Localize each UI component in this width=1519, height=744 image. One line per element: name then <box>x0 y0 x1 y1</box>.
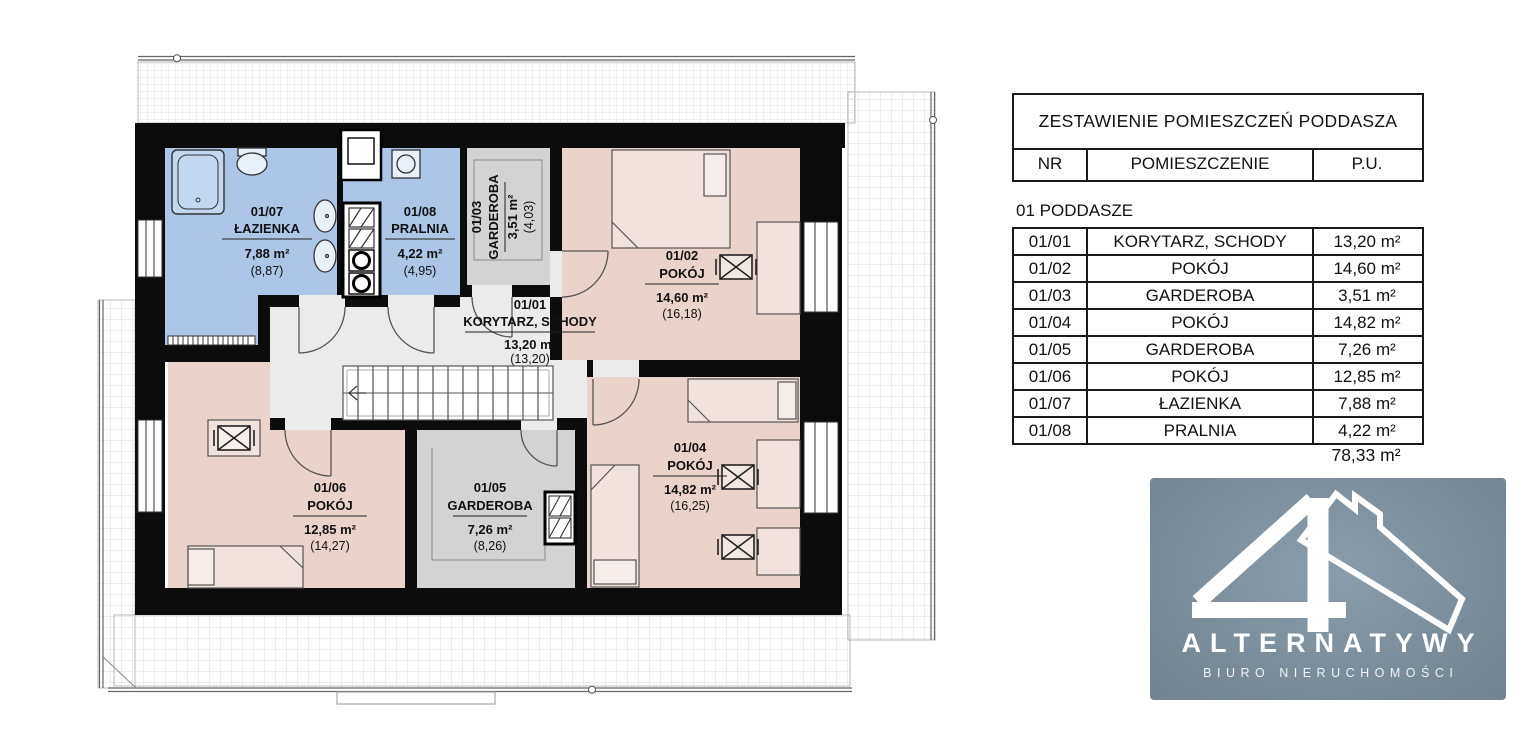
cell-area: 4,22 m² <box>1314 418 1420 443</box>
column-header-pomieszczenie: POMIESZCZENIE <box>1088 148 1314 180</box>
window-pokoj-04 <box>804 422 838 513</box>
svg-text:01/08: 01/08 <box>404 204 437 219</box>
svg-text:GARDEROBA: GARDEROBA <box>486 174 501 260</box>
cell-nr: 01/08 <box>1014 418 1088 443</box>
svg-text:(16,18): (16,18) <box>662 307 702 321</box>
window-lazienka <box>138 220 162 277</box>
column-header-nr: NR <box>1014 148 1088 180</box>
cell-area: 7,88 m² <box>1314 391 1420 416</box>
installation-shaft <box>343 203 380 297</box>
schedule-header-row: NR POMIESZCZENIE P.U. <box>1012 148 1424 182</box>
cell-nr: 01/02 <box>1014 256 1088 281</box>
cell-room: POKÓJ <box>1088 364 1314 389</box>
desk-icon <box>757 222 800 314</box>
cell-area: 12,85 m² <box>1314 364 1420 389</box>
desk-icon <box>757 440 800 575</box>
cell-nr: 01/07 <box>1014 391 1088 416</box>
svg-text:01/02: 01/02 <box>666 248 699 263</box>
svg-text:01/05: 01/05 <box>474 480 507 495</box>
svg-text:POKÓJ: POKÓJ <box>307 498 353 513</box>
table-row: 01/02 POKÓJ 14,60 m² <box>1014 256 1422 283</box>
svg-text:4,22 m²: 4,22 m² <box>398 246 443 261</box>
garderoba-05-shaft <box>545 492 575 544</box>
cell-nr: 01/05 <box>1014 337 1088 362</box>
table-row: 01/03 GARDEROBA 3,51 m² <box>1014 283 1422 310</box>
agency-logo: ALTERNATYWY BIURO NIERUCHOMOŚCI <box>1150 478 1506 700</box>
table-row: 01/06 POKÓJ 12,85 m² <box>1014 364 1422 391</box>
svg-text:14,82 m²: 14,82 m² <box>664 482 717 497</box>
svg-text:(8,87): (8,87) <box>251 264 284 278</box>
svg-text:01/01: 01/01 <box>514 297 547 312</box>
window-pokoj-02 <box>804 222 838 312</box>
room-schedule: ZESTAWIENIE POMIESZCZEŃ PODDASZA NR POMI… <box>1012 93 1424 475</box>
svg-text:7,26 m²: 7,26 m² <box>468 522 513 537</box>
svg-text:GARDEROBA: GARDEROBA <box>447 498 533 513</box>
svg-text:01/04: 01/04 <box>674 440 707 455</box>
cell-area: 3,51 m² <box>1314 283 1420 308</box>
floor-plan-drawing: 01/07 ŁAZIENKA 7,88 m² (8,87) 01/08 PRAL… <box>0 0 960 744</box>
svg-text:(13,20): (13,20) <box>510 352 550 366</box>
cell-nr: 01/01 <box>1014 229 1088 254</box>
svg-text:(16,25): (16,25) <box>670 499 710 513</box>
svg-text:12,85 m²: 12,85 m² <box>304 522 357 537</box>
laundry-washer-icon <box>392 150 420 178</box>
svg-text:7,88 m²: 7,88 m² <box>245 246 290 261</box>
desk-chair-icon <box>716 255 756 279</box>
table-row: 01/04 POKÓJ 14,82 m² <box>1014 310 1422 337</box>
cell-nr: 01/03 <box>1014 283 1088 308</box>
bed-icon <box>591 465 639 587</box>
chimney-block <box>341 130 381 180</box>
cell-area: 13,20 m² <box>1314 229 1420 254</box>
cell-room: GARDEROBA <box>1088 337 1314 362</box>
svg-text:KORYTARZ, SCHODY: KORYTARZ, SCHODY <box>463 314 597 329</box>
floor-plan-page: 01/07 ŁAZIENKA 7,88 m² (8,87) 01/08 PRAL… <box>0 0 1519 744</box>
svg-text:01/07: 01/07 <box>251 204 284 219</box>
table-row: 01/01 KORYTARZ, SCHODY 13,20 m² <box>1014 229 1422 256</box>
bed-icon <box>688 379 798 422</box>
cell-room: POKÓJ <box>1088 256 1314 281</box>
svg-text:PRALNIA: PRALNIA <box>391 221 449 236</box>
schedule-title: ZESTAWIENIE POMIESZCZEŃ PODDASZA <box>1012 93 1424 150</box>
svg-text:(4,95): (4,95) <box>404 264 437 278</box>
svg-text:01/06: 01/06 <box>314 480 347 495</box>
svg-text:3,51 m²: 3,51 m² <box>505 194 520 239</box>
table-row: 01/08 PRALNIA 4,22 m² <box>1014 418 1422 443</box>
svg-text:13,20 m²: 13,20 m² <box>504 337 557 352</box>
svg-text:ŁAZIENKA: ŁAZIENKA <box>234 221 300 236</box>
window-pokoj-06 <box>138 420 162 512</box>
svg-text:(8,26): (8,26) <box>474 539 507 553</box>
cell-nr: 01/04 <box>1014 310 1088 335</box>
radiator-hatch <box>168 336 255 345</box>
schedule-rows: 01/01 KORYTARZ, SCHODY 13,20 m² 01/02 PO… <box>1012 227 1424 445</box>
cell-room: PRALNIA <box>1088 418 1314 443</box>
column-header-pu: P.U. <box>1314 148 1420 180</box>
svg-text:14,60 m²: 14,60 m² <box>656 290 709 305</box>
desk-chair-icon <box>718 465 758 489</box>
table-row: 01/07 ŁAZIENKA 7,88 m² <box>1014 391 1422 418</box>
cell-nr: 01/06 <box>1014 364 1088 389</box>
logo-brand-name: ALTERNATYWY <box>1150 628 1506 659</box>
stairs <box>343 366 553 420</box>
cell-room: POKÓJ <box>1088 310 1314 335</box>
cell-room: KORYTARZ, SCHODY <box>1088 229 1314 254</box>
cell-room: ŁAZIENKA <box>1088 391 1314 416</box>
schedule-section-label: 01 PODDASZE <box>1016 201 1133 221</box>
bed-icon <box>612 150 730 248</box>
svg-text:POKÓJ: POKÓJ <box>667 458 713 473</box>
desk-chair-icon <box>214 426 254 450</box>
logo-subtitle: BIURO NIERUCHOMOŚCI <box>1150 666 1506 680</box>
cell-area: 14,82 m² <box>1314 310 1420 335</box>
toilet-icon <box>237 148 267 175</box>
cell-area: 14,60 m² <box>1314 256 1420 281</box>
svg-text:01/03: 01/03 <box>469 201 484 234</box>
cell-room: GARDEROBA <box>1088 283 1314 308</box>
svg-text:(4,03): (4,03) <box>522 201 536 234</box>
table-row: 01/05 GARDEROBA 7,26 m² <box>1014 337 1422 364</box>
svg-text:POKÓJ: POKÓJ <box>659 266 705 281</box>
svg-text:(14,27): (14,27) <box>310 539 350 553</box>
bathtub-icon <box>172 150 224 214</box>
total-area: 78,33 m² <box>1312 445 1420 466</box>
desk-chair-icon <box>718 535 758 559</box>
cell-area: 7,26 m² <box>1314 337 1420 362</box>
bed-icon <box>188 546 303 588</box>
